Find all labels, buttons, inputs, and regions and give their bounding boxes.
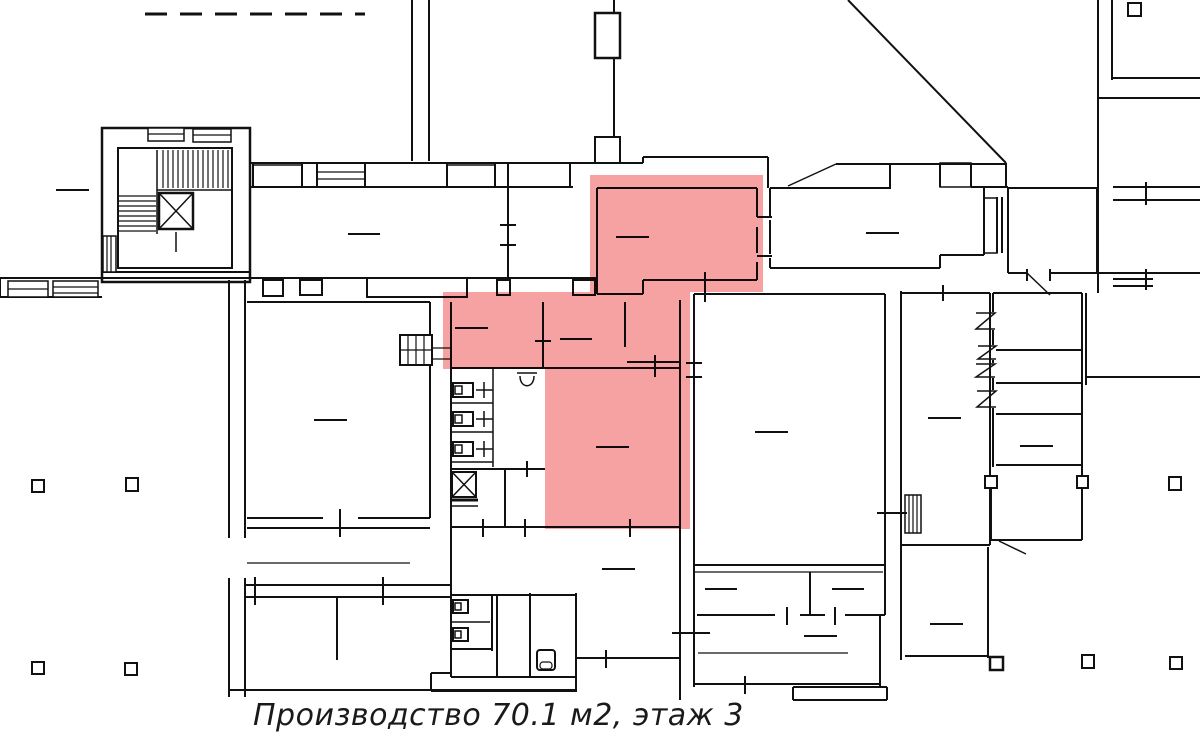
- stairwell: [102, 128, 250, 282]
- toilet-icons-lower: [451, 600, 555, 670]
- plan-caption: Производство 70.1 м2, этаж 3: [253, 698, 744, 733]
- floor-plan-drawing: [0, 0, 1200, 745]
- highlighted-area: [443, 175, 763, 529]
- window-icons: [8, 281, 98, 297]
- toilet-icons-upper: [451, 368, 537, 467]
- duct-shaft-icon: [451, 469, 545, 527]
- shaft-boxes: [595, 13, 620, 163]
- floor-plan: Производство 70.1 м2, этаж 3: [0, 0, 1200, 745]
- elevator-shaft-icon: [159, 193, 193, 229]
- sink-icon: [517, 373, 537, 386]
